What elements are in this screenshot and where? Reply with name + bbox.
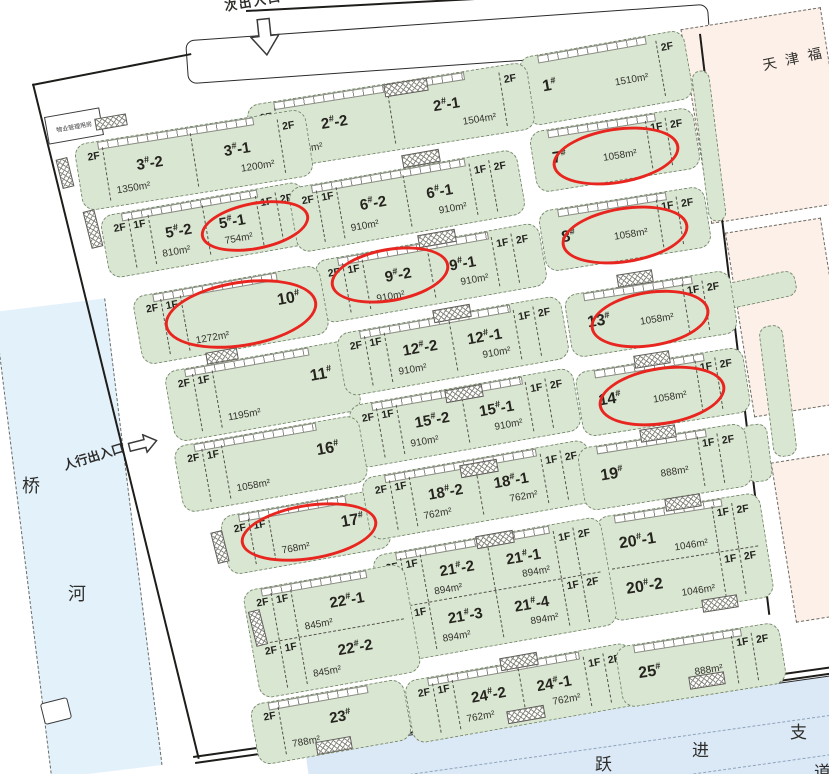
unit-area: 1195m² bbox=[227, 407, 262, 424]
floor-tag-label: 2F bbox=[142, 301, 163, 316]
floor-tag-label: 2F bbox=[489, 159, 510, 174]
floor-tag-label: 1F bbox=[272, 592, 293, 607]
unit-name: 1# bbox=[541, 75, 558, 96]
floor-tag-label: 2F bbox=[183, 451, 204, 466]
unit-area: 910m² bbox=[410, 434, 440, 450]
unit-name: 18#-1 bbox=[492, 468, 530, 492]
floor-tag-label: 2F bbox=[718, 432, 739, 447]
unit-area: 910m² bbox=[438, 201, 468, 217]
neighbor-building bbox=[771, 453, 829, 622]
building-19: 19#888m²1F2F bbox=[585, 429, 745, 504]
floor-tag-label: 1F bbox=[584, 655, 605, 670]
unit-area: 894m² bbox=[521, 564, 551, 580]
unit-name: 3#-2 bbox=[135, 152, 164, 174]
floor-tag-label: 2F bbox=[666, 117, 687, 132]
floor-tag-label: 1F bbox=[562, 577, 583, 592]
floor-tag-label: 1F bbox=[317, 189, 338, 204]
floor-tag-label: 1F bbox=[193, 373, 214, 388]
floor-tag-label: 2F bbox=[259, 709, 280, 724]
building-20: 20#-11046m²1F2F20#-21046m²1F2F bbox=[604, 499, 767, 615]
floor-tag-label: 2F bbox=[732, 502, 753, 517]
floor-tag-label: 2F bbox=[174, 376, 195, 391]
unit-name: 21#-2 bbox=[438, 556, 476, 580]
floor-tag-label: 1F bbox=[401, 557, 422, 572]
floor-tag-label: 1F bbox=[377, 407, 398, 422]
unit-name: 21#-3 bbox=[446, 604, 484, 628]
river-label: 河 bbox=[68, 580, 86, 606]
unit-area: 1504m² bbox=[462, 112, 497, 128]
unit-area: 894m² bbox=[442, 629, 472, 645]
unit-area: 845m² bbox=[304, 616, 334, 632]
floor-tag-label: 1F bbox=[713, 505, 734, 520]
unit-name: 22#-1 bbox=[328, 588, 366, 612]
unit-area: 894m² bbox=[530, 611, 560, 627]
unit-area: 888m² bbox=[660, 464, 690, 479]
floor-tag-label: 2F bbox=[740, 548, 761, 563]
floor-tag-label: 1F bbox=[526, 381, 547, 396]
floor-tag-label: 1F bbox=[720, 551, 741, 566]
bottom-road-label: 进 bbox=[692, 736, 709, 761]
bottom-road-label: 支 bbox=[790, 718, 807, 743]
floor-tag-label: 2F bbox=[252, 595, 273, 610]
floor-tag-label: 1F bbox=[541, 452, 562, 467]
floor-tag-label: 2F bbox=[677, 196, 698, 211]
unit-name: 3#-1 bbox=[222, 138, 251, 160]
floor-tag-label: 2F bbox=[346, 338, 367, 353]
unit-name: 22#-2 bbox=[336, 636, 374, 660]
unit-area: 762m² bbox=[423, 506, 453, 522]
unit-name: 12#-1 bbox=[466, 324, 504, 348]
unit-area: 910m² bbox=[350, 218, 380, 234]
floor-tag-label: 2F bbox=[358, 410, 379, 425]
unit-name: 20#-1 bbox=[618, 528, 658, 553]
floor-tag-label: 2F bbox=[534, 305, 555, 320]
unit-name: 2#-1 bbox=[432, 93, 461, 115]
floor-tag-label: 1F bbox=[514, 309, 535, 324]
building-22: 2F1F22#-1845m²2F1F22#-2845m² bbox=[251, 570, 414, 692]
floor-tag-label: 2F bbox=[512, 232, 533, 247]
unit-area: 894m² bbox=[433, 581, 463, 597]
floor-tag-label: 2F bbox=[500, 72, 521, 87]
secondary-entrance-label: 次出入口 bbox=[223, 0, 283, 15]
floor-tag-label: 2F bbox=[546, 377, 567, 392]
river-label: 桥 bbox=[22, 472, 40, 498]
unit-name: 24#-2 bbox=[470, 683, 508, 707]
unit-name: 5#-2 bbox=[164, 220, 193, 242]
floor-tag-label: 1F bbox=[554, 530, 575, 545]
floor-tag-label: 2F bbox=[574, 526, 595, 541]
unit-name: 25# bbox=[637, 661, 663, 684]
floor-tag-label: 2F bbox=[109, 220, 130, 235]
floor-tag-label: 2F bbox=[371, 482, 392, 497]
unit-area: 910m² bbox=[494, 417, 524, 433]
unit-name: 18#-2 bbox=[427, 480, 465, 504]
unit-area: 810m² bbox=[162, 244, 192, 260]
floor-tag-label: 1F bbox=[280, 639, 301, 654]
unit-area: 1058m² bbox=[236, 478, 271, 495]
floor-tag-label: 1F bbox=[732, 635, 753, 650]
unit-name: 23# bbox=[328, 706, 352, 727]
floor-tag-label: 2F bbox=[657, 39, 678, 54]
unit-name: 15#-2 bbox=[413, 408, 451, 432]
floor-tag-label: 1F bbox=[365, 335, 386, 350]
floor-tag-label: 2F bbox=[278, 118, 299, 133]
unit-area: 762m² bbox=[466, 709, 496, 725]
floor-tag-label: 2F bbox=[83, 149, 104, 164]
unit-area: 1200m² bbox=[240, 159, 275, 175]
floor-tag-label: 2F bbox=[752, 632, 773, 647]
unit-area: 762m² bbox=[552, 692, 582, 708]
floor-tag-label: 1F bbox=[698, 436, 719, 451]
river bbox=[0, 298, 162, 774]
floor-tag-label: 2F bbox=[582, 574, 603, 589]
secondary-entrance-arrow-icon bbox=[248, 17, 282, 58]
floor-tag-label: 2F bbox=[716, 356, 737, 371]
site-plan-canvas: 桥 河 跃 进 支 道 天津福 物业管理用房 次出入口 人行出入口 1#1510… bbox=[0, 0, 829, 774]
management-building-label: 物业管理用房 bbox=[55, 118, 92, 133]
unit-area: 1046m² bbox=[674, 537, 709, 553]
bottom-road-label: 道 bbox=[814, 758, 829, 774]
unit-name: 6#-2 bbox=[358, 192, 387, 214]
unit-name: 2#-2 bbox=[320, 111, 349, 133]
unit-name: 24#-1 bbox=[535, 671, 573, 695]
floor-tag-label: 2F bbox=[414, 685, 435, 700]
unit-area: 910m² bbox=[482, 345, 512, 361]
floor-tag-label: 1F bbox=[390, 479, 411, 494]
floor-tag-label: 1F bbox=[492, 236, 513, 251]
unit-area: 910m² bbox=[398, 362, 428, 378]
pedestrian-entrance-arrow-icon bbox=[126, 431, 160, 458]
unit-area: 762m² bbox=[509, 489, 539, 505]
unit-area: 910m² bbox=[460, 272, 490, 288]
unit-name: 16# bbox=[315, 437, 341, 460]
unit-area: 845m² bbox=[312, 664, 342, 680]
unit-name: 15#-1 bbox=[478, 396, 516, 420]
unit-area: 1350m² bbox=[116, 180, 151, 196]
unit-name: 9#-1 bbox=[448, 252, 477, 274]
floor-tag-label: 2F bbox=[703, 280, 724, 295]
unit-area: 1510m² bbox=[614, 72, 649, 89]
unit-area: 1046m² bbox=[681, 583, 716, 599]
unit-name: 6#-1 bbox=[425, 180, 454, 202]
floor-tag-label: 1F bbox=[129, 217, 150, 232]
unit-name: 11# bbox=[308, 363, 333, 386]
bottom-road-label: 跃 bbox=[595, 750, 612, 774]
floor-tag-label: 1F bbox=[433, 682, 454, 697]
unit-name: 20#-2 bbox=[625, 574, 665, 599]
unit-name: 19# bbox=[599, 463, 625, 486]
unit-name: 12#-2 bbox=[401, 336, 439, 360]
floor-tag-label: 1F bbox=[203, 447, 224, 462]
floor-tag-label: 1F bbox=[470, 162, 491, 177]
site-boundary bbox=[32, 53, 191, 86]
